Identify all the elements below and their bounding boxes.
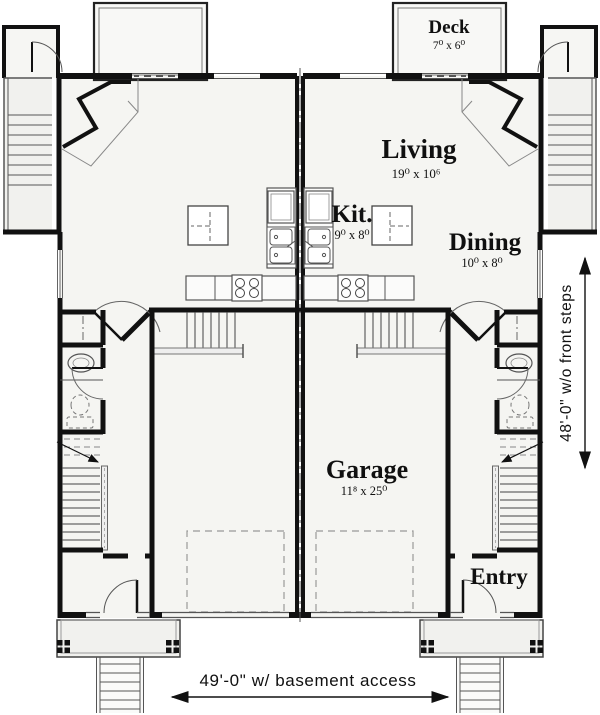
dining-label: Dining	[449, 229, 522, 256]
garage-label: Garage	[326, 455, 408, 484]
living-dims: 19⁰ x 10⁶	[392, 166, 441, 181]
unit-left-geometry	[3, 3, 300, 713]
kitchen-dims: 9⁰ x 8⁰	[334, 228, 369, 242]
floor-plan-canvas: Deck 7⁰ x 6⁰ Living 19⁰ x 10⁶ Kit. 9⁰ x …	[0, 0, 600, 715]
floor-plan-page: Deck 7⁰ x 6⁰ Living 19⁰ x 10⁶ Kit. 9⁰ x …	[0, 0, 600, 715]
dining-dims: 10⁰ x 8⁰	[461, 256, 502, 270]
entry-label: Entry	[470, 564, 528, 589]
unit-right-geometry	[300, 3, 597, 713]
height-dimension: 48'-0" w/o front steps	[558, 284, 575, 442]
kitchen-label: Kit.	[332, 201, 373, 228]
deck-dims: 7⁰ x 6⁰	[433, 40, 466, 52]
living-label: Living	[381, 134, 457, 164]
width-dimension: 49'-0" w/ basement access	[199, 671, 416, 690]
deck-label: Deck	[428, 17, 470, 38]
garage-dims: 11⁸ x 25⁰	[341, 484, 387, 498]
